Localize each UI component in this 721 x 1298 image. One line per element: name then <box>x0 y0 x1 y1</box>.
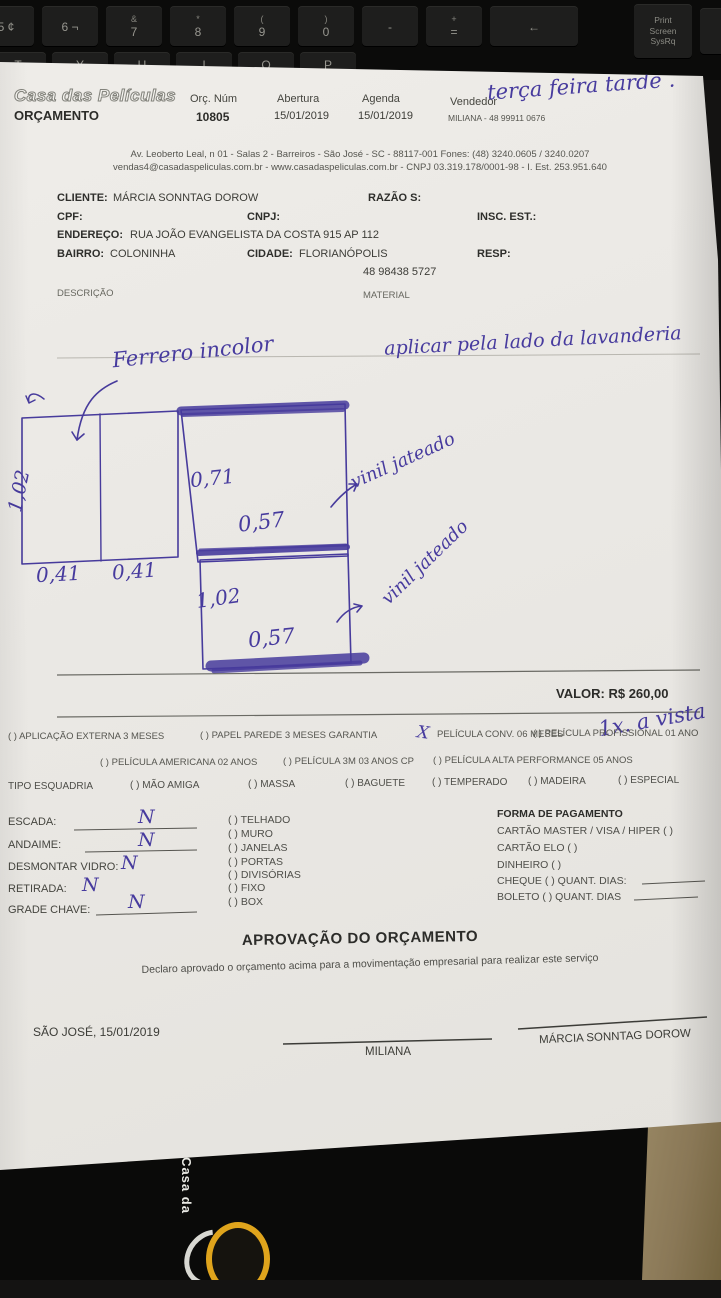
agenda-value: 15/01/2019 <box>358 110 413 122</box>
key-label: = <box>450 26 457 38</box>
key-partial <box>700 8 721 54</box>
budget-form-paper: Casa das Películas ORÇAMENTO Orç. Núm 10… <box>0 0 721 1280</box>
field-escada-label: ESCADA: <box>8 816 56 828</box>
key-top: * <box>196 15 200 24</box>
bairro-value: COLONINHA <box>110 248 175 260</box>
location-option: ( ) PORTAS <box>228 856 283 868</box>
esquadria-option: ( ) MASSA <box>248 779 295 790</box>
field-retirada-label: RETIRADA: <box>8 883 67 895</box>
document-title: ORÇAMENTO <box>14 108 99 123</box>
handwritten-grade-chave-value: N <box>128 891 145 913</box>
esquadria-option: ( ) MÃO AMIGA <box>130 780 199 791</box>
vendedor-value: MILIANA - 48 99911 0676 <box>448 113 545 123</box>
material-label: MATERIAL <box>363 290 410 301</box>
handwritten-retirada-value: N <box>82 874 99 896</box>
key-5: 5 ¢ <box>0 6 34 46</box>
key-9: (9 <box>234 6 290 46</box>
backspace-arrow-icon: ← <box>528 21 540 33</box>
esquadria-option: ( ) MADEIRA <box>528 776 586 787</box>
key-label: 8 <box>195 26 202 38</box>
key-7: &7 <box>106 6 162 46</box>
payment-method: BOLETO ( ) QUANT. DIAS <box>497 891 621 903</box>
key-label: 9 <box>259 26 266 38</box>
field-grade-chave-label: GRADE CHAVE: <box>8 904 90 916</box>
location-option: ( ) TELHADO <box>228 814 290 826</box>
field-desmontar-label: DESMONTAR VIDRO: <box>8 861 118 873</box>
key-label: 6 ¬ <box>61 21 78 33</box>
signature-seller-name: MILIANA <box>283 1046 493 1058</box>
orc-num-value: 10805 <box>196 110 229 124</box>
endereco-value: RUA JOÃO EVANGELISTA DA COSTA 915 AP 112 <box>130 229 379 241</box>
key-label: 5 ¢ <box>0 21 14 33</box>
agenda-label: Agenda <box>362 93 400 105</box>
left-window-width-2: 0,41 <box>111 557 157 584</box>
cidade-value: FLORIANÓPOLIS <box>299 248 388 260</box>
esquadria-option: ( ) TEMPERADO <box>432 777 507 788</box>
key-printscreen: Print Screen SysRq <box>634 4 692 58</box>
key-top: & <box>131 15 137 24</box>
key-label: 7 <box>131 26 138 38</box>
warranty-option: ( ) APLICAÇÃO EXTERNA 3 MESES <box>8 731 164 742</box>
cliente-label: CLIENTE: <box>57 192 108 204</box>
warranty-option: ( ) PELÍCULA AMERICANA 02 ANOS <box>100 757 257 768</box>
key-equals: += <box>426 6 482 46</box>
key-top: ) <box>325 15 328 24</box>
key-0: )0 <box>298 6 354 46</box>
key-label: 0 <box>323 26 330 38</box>
esquadria-label: TIPO ESQUADRIA <box>8 781 93 792</box>
descricao-label: DESCRIÇÃO <box>57 288 113 299</box>
top-window-height: 0,71 <box>189 464 236 493</box>
warranty-option: ( ) PELÍCULA 3M 03 ANOS CP <box>283 756 414 767</box>
client-phone: 48 98438 5727 <box>363 266 436 278</box>
total-value: VALOR: R$ 260,00 <box>556 686 668 701</box>
abertura-label: Abertura <box>277 93 319 105</box>
cidade-label: CIDADE: <box>247 248 293 260</box>
key-backspace: ← <box>490 6 578 46</box>
sketch-drawing <box>0 0 721 1280</box>
payment-method: CHEQUE ( ) QUANT. DIAS: <box>497 875 627 887</box>
key-top: ( <box>261 15 264 24</box>
bairro-label: BAIRRO: <box>57 248 104 260</box>
abertura-value: 15/01/2019 <box>274 110 329 122</box>
folder-brand-text: Casa da <box>179 1157 194 1214</box>
city-date: SÃO JOSÉ, 15/01/2019 <box>33 1025 160 1039</box>
resp-label: RESP: <box>477 248 511 260</box>
bottom-window-width: 0,57 <box>247 624 296 653</box>
payment-method: CARTÃO MASTER / VISA / HIPER ( ) <box>497 825 673 837</box>
cliente-value: MÁRCIA SONNTAG DOROW <box>113 192 258 204</box>
key-8: *8 <box>170 6 226 46</box>
location-option: ( ) MURO <box>228 828 273 840</box>
cnpj-label: CNPJ: <box>247 211 280 223</box>
warranty-option: ( ) PELÍCULA PROFISSIONAL 01 ANO <box>533 728 698 739</box>
field-andaime-label: ANDAIME: <box>8 839 61 851</box>
company-address-line1: Av. Leoberto Leal, n 01 - Salas 2 - Barr… <box>60 149 660 160</box>
cpf-label: CPF: <box>57 211 83 223</box>
orc-num-label: Orç. Núm <box>190 93 237 105</box>
location-option: ( ) JANELAS <box>228 842 288 854</box>
payment-method: CARTÃO ELO ( ) <box>497 842 577 854</box>
payment-method: DINHEIRO ( ) <box>497 859 561 871</box>
location-option: ( ) DIVISÓRIAS <box>228 869 301 881</box>
key-6: 6 ¬ <box>42 6 98 46</box>
warranty-option: ( ) PELÍCULA ALTA PERFORMANCE 05 ANOS <box>433 755 633 766</box>
insc-est-label: INSC. EST.: <box>477 211 536 223</box>
company-address-line2: vendas4@casadaspeliculas.com.br - www.ca… <box>60 162 660 173</box>
esquadria-option: ( ) ESPECIAL <box>618 775 679 786</box>
key-label: Print Screen SysRq <box>641 15 685 47</box>
folder-logo-yellow-ring-icon <box>206 1222 270 1296</box>
company-logo: Casa das Películas <box>14 86 176 106</box>
key-top: + <box>451 15 456 24</box>
key-minus: - <box>362 6 418 46</box>
warranty-option: ( ) PAPEL PAREDE 3 MESES GARANTIA <box>200 730 377 741</box>
location-option: ( ) FIXO <box>228 882 265 894</box>
key-label: - <box>388 21 392 33</box>
left-window-width-1: 0,41 <box>35 561 81 587</box>
endereco-label: ENDEREÇO: <box>57 229 123 241</box>
handwritten-escada-value: N <box>138 806 155 828</box>
handwritten-andaime-value: N <box>138 829 155 851</box>
handwritten-desmontar-value: N <box>121 852 138 874</box>
location-option: ( ) BOX <box>228 896 263 908</box>
esquadria-option: ( ) BAGUETE <box>345 778 405 789</box>
payment-title: FORMA DE PAGAMENTO <box>497 808 623 820</box>
razao-label: RAZÃO S: <box>368 192 421 204</box>
